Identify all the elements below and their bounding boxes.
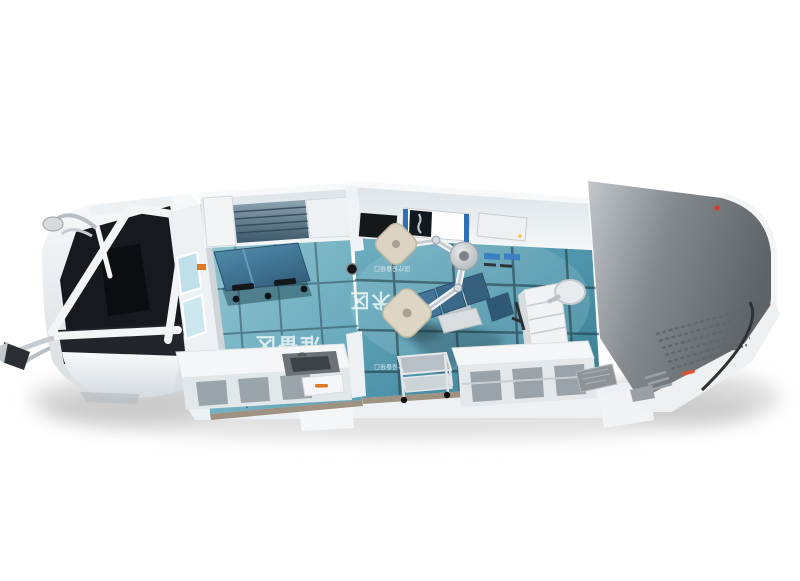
step-drawer [302, 374, 344, 396]
arm-joint-1 [432, 236, 440, 244]
trolley-top-shelf [398, 353, 451, 374]
vehicle-cutaway-render: 准备区 手术区 医疗设备接口 医疗设备接口 [0, 0, 800, 581]
viewer-cap-right [464, 214, 469, 242]
upper-cabinet-left [203, 196, 236, 247]
light-hub-center [459, 251, 469, 261]
trolley-caster-2 [444, 392, 450, 398]
panel-indicator-light [518, 234, 521, 237]
cart-round-top [555, 280, 585, 304]
orange-device [197, 264, 206, 270]
hospital-bed [214, 243, 312, 306]
partition-window-lower [182, 295, 206, 339]
rear-roof-module [588, 181, 777, 404]
trolley-caster-1 [401, 397, 407, 403]
outlet-label: 医疗设备接口 [374, 265, 410, 273]
mirror-bottom [0, 338, 54, 370]
partition-window-upper [177, 252, 201, 294]
prep-back-wall [198, 183, 354, 248]
mirror-glass [43, 217, 63, 231]
marker-light-top [714, 205, 719, 210]
panel-screen-2 [504, 253, 520, 260]
panel-screen-1 [484, 253, 500, 260]
surgery-bottom-counter [452, 341, 597, 407]
arm-joint-2 [454, 284, 462, 292]
trolley-lower-shelf [402, 374, 452, 392]
drawer-orange-handle [315, 384, 328, 388]
render-canvas: 准备区 手术区 医疗设备接口 医疗设备接口 [0, 0, 800, 581]
outlet-circle-icon [347, 264, 358, 275]
upper-cabinet-right [306, 197, 351, 238]
